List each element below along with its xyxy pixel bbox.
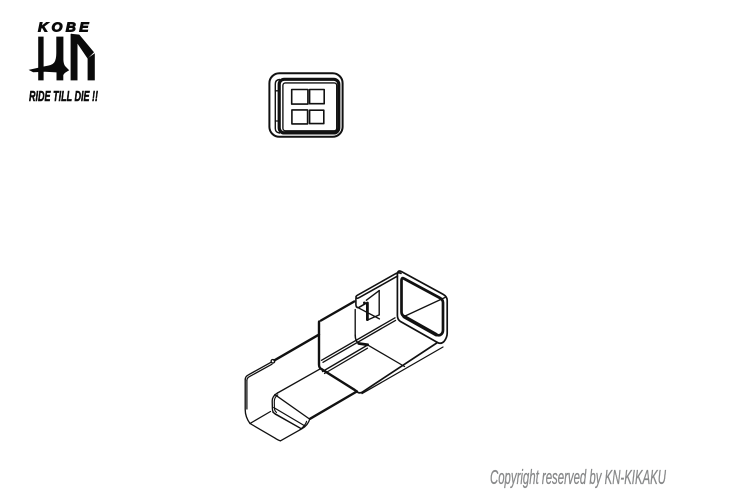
svg-text:RIDE TILL DIE !!: RIDE TILL DIE !! [29,89,98,105]
svg-text:Copyright reserved by KN-KIKAK: Copyright reserved by KN-KIKAKU [490,467,666,489]
svg-text:KOBE: KOBE [38,21,92,35]
